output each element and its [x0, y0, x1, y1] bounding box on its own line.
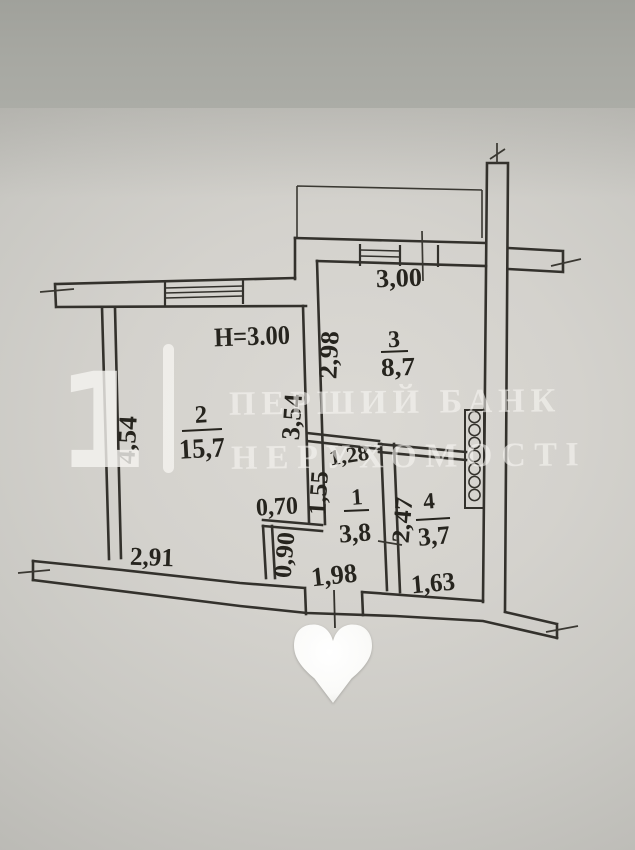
white-heart-icon [0, 0, 635, 850]
floor-plan-photo: Н=3.00 3,00 2,98 3,54 4,54 0,70 1,55 1,2… [0, 0, 635, 850]
